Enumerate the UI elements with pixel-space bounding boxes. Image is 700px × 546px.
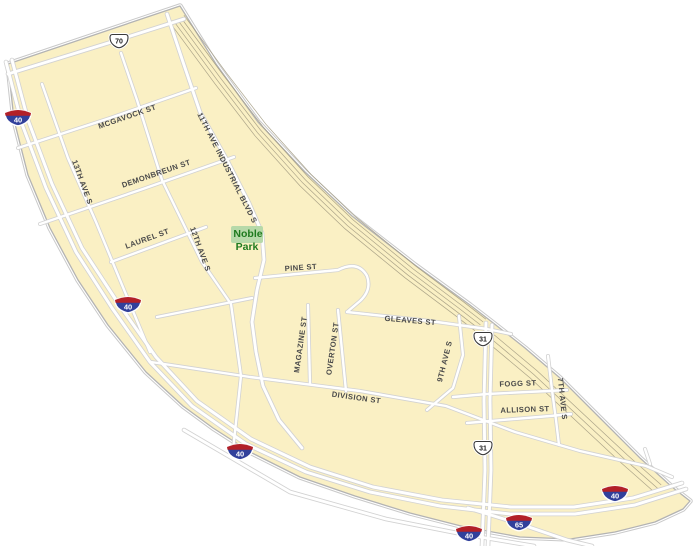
interstate-shield-number: 40 xyxy=(611,492,619,501)
street-label-fogg-st: FOGG ST xyxy=(499,378,536,388)
map-viewport[interactable]: Noble Park 404040404065703131 MCGAVOCK S… xyxy=(0,0,700,546)
us-route-shield-31: 31 xyxy=(474,333,492,346)
noble-park-label: Noble xyxy=(233,228,262,240)
interstate-shield-number: 40 xyxy=(465,532,473,541)
interstate-shield-number: 65 xyxy=(515,521,523,530)
street-label-allison-st: ALLISON ST xyxy=(500,404,549,415)
interstate-shield-number: 40 xyxy=(236,450,244,459)
us-route-shield-70: 70 xyxy=(110,35,128,48)
us-route-shield-number: 70 xyxy=(115,39,123,46)
us-route-shield-number: 31 xyxy=(479,446,487,453)
map-canvas: Noble Park 404040404065703131 MCGAVOCK S… xyxy=(0,0,700,546)
us-route-shield-31: 31 xyxy=(474,442,492,455)
interstate-shield-number: 40 xyxy=(14,116,22,125)
interstate-shield-number: 40 xyxy=(124,303,132,312)
district-area-layer xyxy=(8,6,690,539)
park-layer: Noble Park xyxy=(231,226,263,253)
us-route-shield-number: 31 xyxy=(479,337,487,344)
interstate-shield-40: 40 xyxy=(456,526,482,542)
district-area-polygon xyxy=(8,6,690,539)
noble-park-label: Park xyxy=(236,241,259,253)
